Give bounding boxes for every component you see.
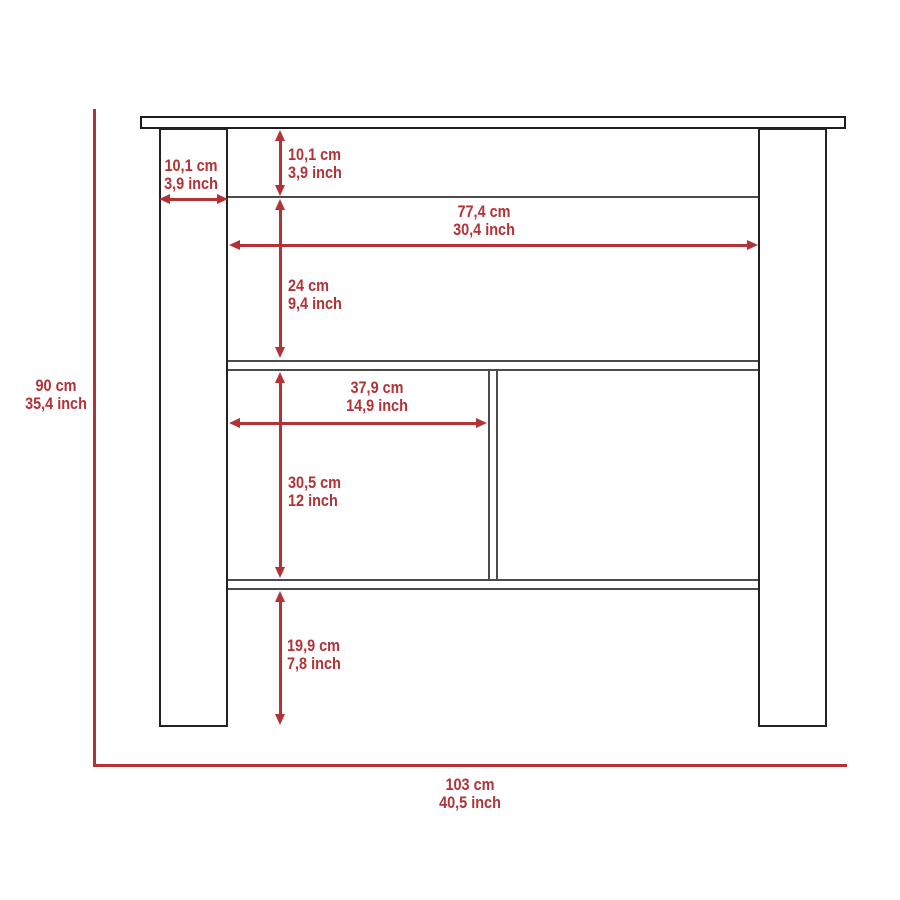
arrowhead-up-icon [275, 130, 285, 141]
leg-width-label: 10,1 cm 3,9 inch [140, 157, 242, 193]
arrowhead-down-icon [275, 567, 285, 578]
compartment-height-label: 30,5 cm 12 inch [288, 474, 341, 510]
leg-width-inch: 3,9 inch [140, 175, 242, 193]
arrowhead-left-icon [229, 418, 240, 428]
width-boundary-line [93, 764, 847, 767]
overall-height-cm: 90 cm [8, 377, 103, 395]
bottom-shelf-top-line [228, 579, 758, 581]
top-rail-height-arrow [271, 130, 289, 196]
left-leg-outline [159, 128, 228, 727]
arrowhead-left-icon [159, 194, 170, 204]
bottom-clearance-cm: 19,9 cm [287, 637, 341, 655]
top-rail-cm: 10,1 cm [288, 146, 342, 164]
dimension-diagram-canvas: 10,1 cm 3,9 inch 10,1 cm 3,9 inch 77,4 c… [0, 0, 900, 900]
overall-height-inch: 35,4 inch [8, 395, 103, 413]
middle-shelf-bottom-line [228, 369, 758, 371]
inner-width-inch: 30,4 inch [416, 221, 552, 239]
arrow-shaft [279, 210, 282, 347]
arrowhead-left-icon [229, 240, 240, 250]
arrow-shaft [279, 383, 282, 567]
compartment-divider-left-line [488, 370, 490, 579]
overall-width-label: 103 cm 40,5 inch [402, 776, 538, 812]
arrow-shaft [279, 602, 282, 714]
overall-width-inch: 40,5 inch [402, 794, 538, 812]
arrowhead-down-icon [275, 347, 285, 358]
arrowhead-up-icon [275, 199, 285, 210]
countertop-outline [140, 116, 846, 129]
upper-opening-height-arrow [271, 199, 289, 358]
bottom-clearance-label: 19,9 cm 7,8 inch [287, 637, 341, 673]
upper-opening-inch: 9,4 inch [288, 295, 342, 313]
top-rail-height-label: 10,1 cm 3,9 inch [288, 146, 342, 182]
arrow-shaft [279, 141, 282, 185]
middle-shelf-top-line [228, 360, 758, 362]
compartment-divider-right-line [496, 370, 498, 579]
left-compartment-width-label: 37,9 cm 14,9 inch [309, 379, 445, 415]
upper-opening-height-label: 24 cm 9,4 inch [288, 277, 342, 313]
height-boundary-line [93, 109, 96, 767]
overall-width-cm: 103 cm [402, 776, 538, 794]
arrowhead-up-icon [275, 372, 285, 383]
upper-opening-cm: 24 cm [288, 277, 342, 295]
inner-width-cm: 77,4 cm [416, 203, 552, 221]
arrowhead-up-icon [275, 591, 285, 602]
inner-width-label: 77,4 cm 30,4 inch [416, 203, 552, 239]
top-rail-inch: 3,9 inch [288, 164, 342, 182]
overall-height-label: 90 cm 35,4 inch [8, 377, 103, 413]
compartment-height-cm: 30,5 cm [288, 474, 341, 492]
arrowhead-right-icon [747, 240, 758, 250]
arrowhead-right-icon [217, 194, 228, 204]
left-compartment-width-arrow [229, 414, 487, 432]
left-compartment-inch: 14,9 inch [309, 397, 445, 415]
bottom-shelf-bottom-line [228, 588, 758, 590]
arrow-shaft [170, 198, 217, 201]
compartment-height-arrow [271, 372, 289, 578]
right-leg-outline [758, 128, 827, 727]
leg-width-cm: 10,1 cm [140, 157, 242, 175]
bottom-clearance-inch: 7,8 inch [287, 655, 341, 673]
arrow-shaft [240, 244, 747, 247]
top-rail-line [228, 196, 758, 198]
arrowhead-down-icon [275, 185, 285, 196]
left-compartment-cm: 37,9 cm [309, 379, 445, 397]
arrowhead-down-icon [275, 714, 285, 725]
compartment-height-inch: 12 inch [288, 492, 341, 510]
arrowhead-right-icon [476, 418, 487, 428]
